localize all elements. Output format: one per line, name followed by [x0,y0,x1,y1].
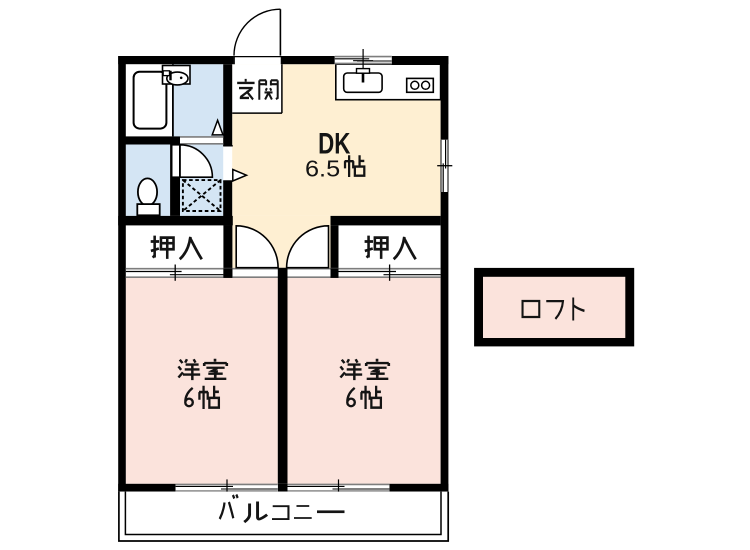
svg-text:6.5: 6.5 [305,157,340,183]
svg-text:DK: DK [318,126,350,160]
